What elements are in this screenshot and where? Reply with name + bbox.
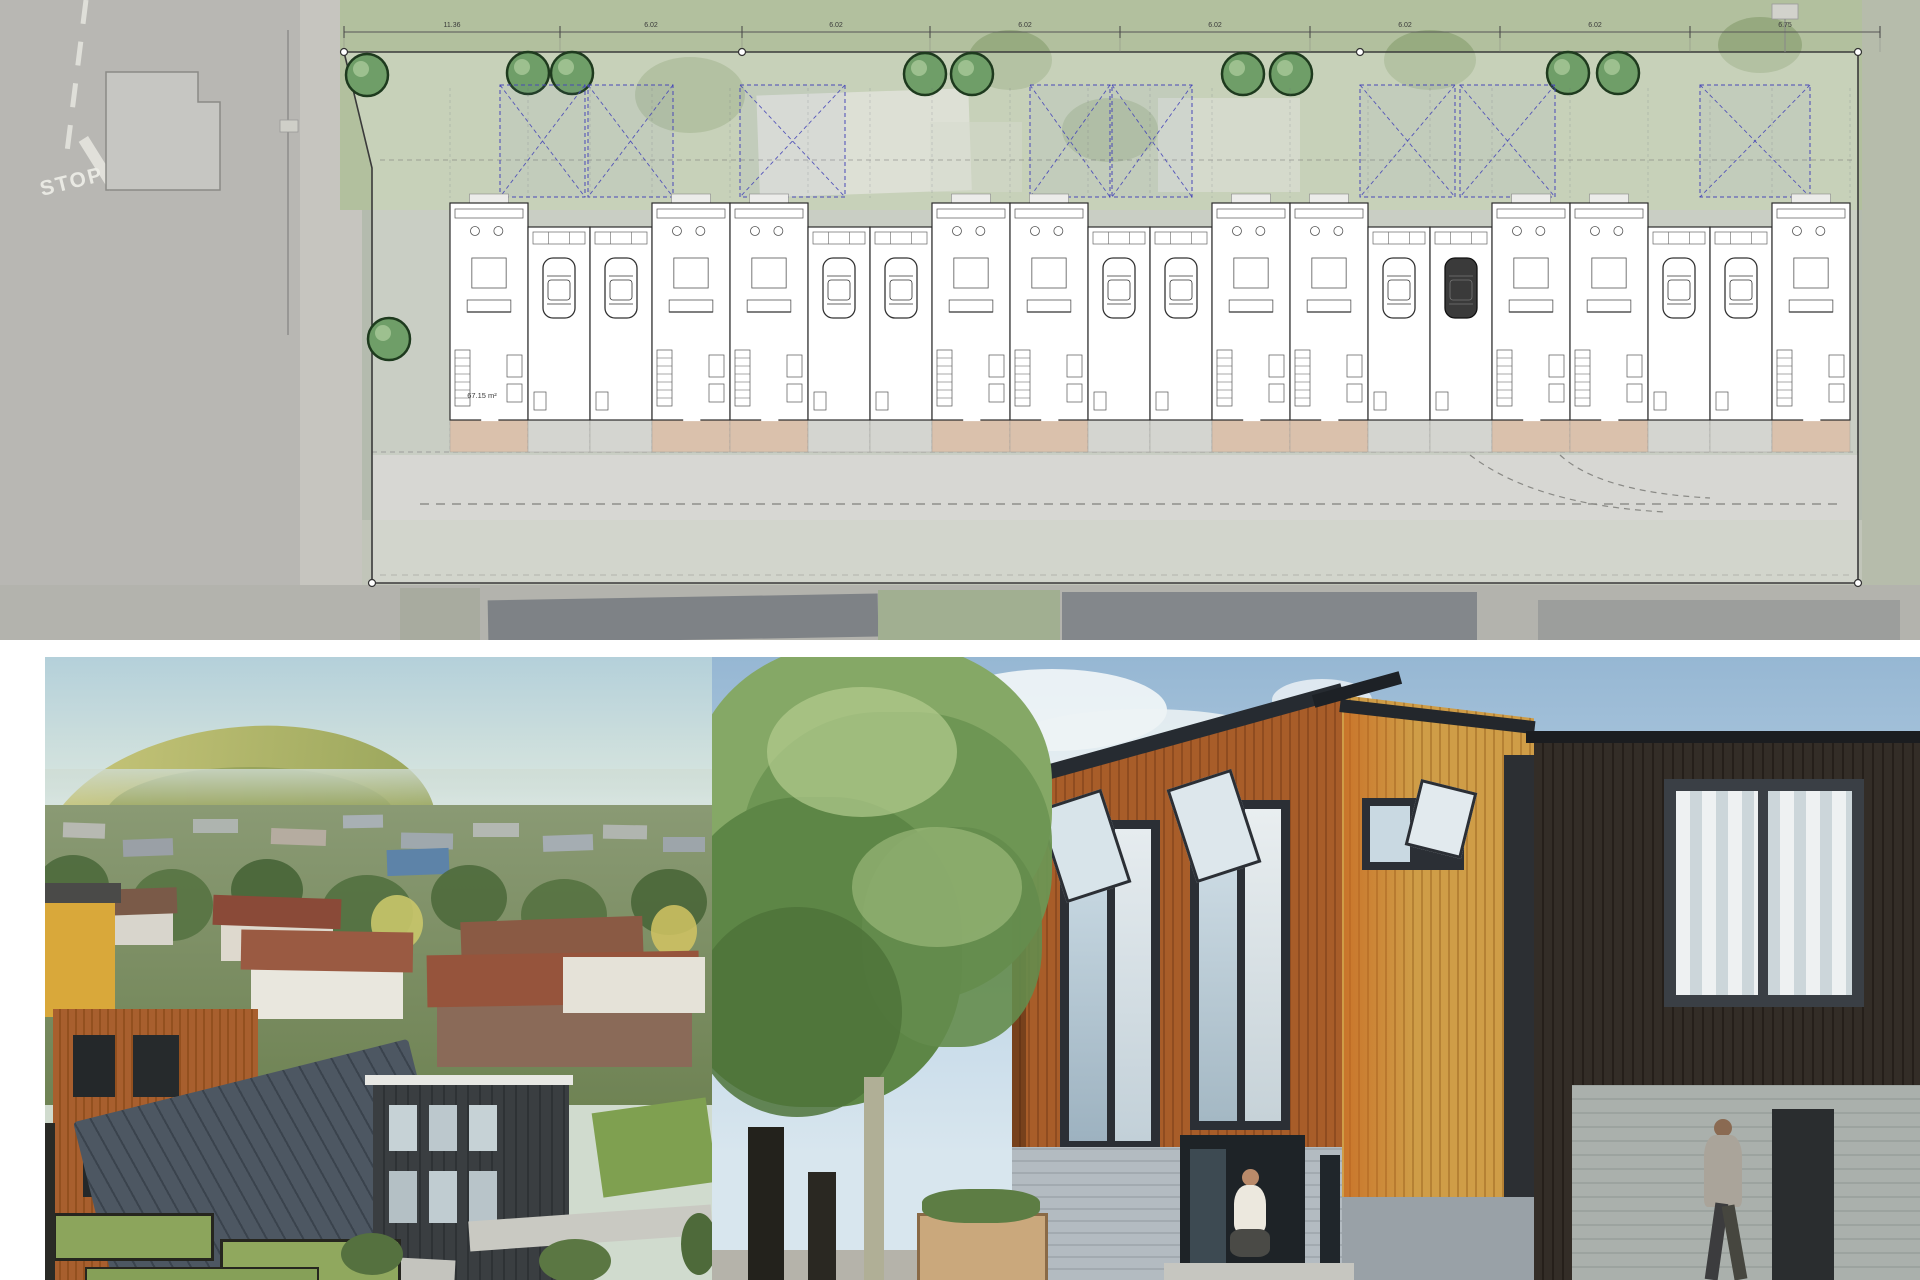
planter-greenery — [922, 1189, 1040, 1223]
dimension-label: 6.02 — [1588, 22, 1602, 29]
neighbor-roof — [488, 594, 879, 640]
fence — [45, 1123, 55, 1280]
rear-deck — [1792, 194, 1831, 203]
survey-marker — [280, 120, 298, 132]
aerial-right-margin — [1862, 0, 1920, 640]
tree-symbol-highlight — [1554, 59, 1570, 75]
person-sitting-legs — [1230, 1229, 1270, 1257]
corner-sun-glow — [1344, 712, 1414, 1272]
tree-highlight — [767, 687, 957, 817]
tree-symbol-highlight — [1229, 60, 1245, 76]
garage-unit — [808, 227, 870, 420]
person-sitting-body — [1234, 1185, 1266, 1233]
yellow-house — [45, 893, 115, 1017]
rear-patio — [528, 420, 590, 452]
rear-deck — [672, 194, 711, 203]
rear-patio — [1772, 420, 1850, 452]
plan-pin-tag — [1772, 4, 1798, 19]
person-sitting-head — [1242, 1169, 1259, 1186]
concrete-wall-side — [1342, 1197, 1534, 1280]
tree-symbol-highlight — [375, 325, 391, 341]
distant-roof — [473, 823, 519, 837]
garage-unit — [1368, 227, 1430, 420]
rear-patio — [652, 420, 730, 452]
window — [469, 1105, 497, 1151]
neighbor-garden — [878, 590, 1060, 640]
garage-unit — [1430, 227, 1492, 420]
tree-symbol — [951, 53, 993, 95]
tree-highlight — [852, 827, 1022, 947]
rear-patio — [870, 420, 932, 452]
garage-unit — [1710, 227, 1772, 420]
garage-unit — [590, 227, 652, 420]
white-house-roof — [241, 930, 414, 973]
tree-symbol — [1222, 53, 1264, 95]
tree-trunk-light — [864, 1077, 884, 1280]
boundary-node — [369, 580, 376, 587]
rear-patio — [1150, 420, 1212, 452]
rear-patio — [932, 420, 1010, 452]
rear-deck — [470, 194, 509, 203]
townhouse-render-photo — [712, 657, 1920, 1280]
dimension-label: 6.02 — [1208, 22, 1222, 29]
neighbor-roof — [1538, 600, 1900, 640]
boundary-node — [1855, 49, 1862, 56]
tree-symbol-highlight — [1277, 60, 1293, 76]
distant-roof — [271, 828, 327, 846]
rear-patio — [1290, 420, 1368, 452]
rear-patio — [1430, 420, 1492, 452]
window-glass — [1370, 806, 1410, 862]
rear-patio — [590, 420, 652, 452]
rear-deck — [1512, 194, 1551, 203]
blue-roof-house — [387, 848, 450, 876]
neighbor-roof — [1062, 592, 1477, 640]
tree-symbol-highlight — [911, 60, 927, 76]
window — [389, 1105, 417, 1151]
rear-deck — [1310, 194, 1349, 203]
window — [429, 1105, 457, 1151]
entry-door-glass — [1190, 1149, 1226, 1280]
accent-stripe — [1504, 755, 1534, 1205]
dark-building-fascia — [1526, 731, 1920, 743]
narrow-window — [1320, 1155, 1340, 1280]
garage-unit — [1648, 227, 1710, 420]
garage-unit — [870, 227, 932, 420]
rear-patio — [1710, 420, 1772, 452]
rear-deck — [750, 194, 789, 203]
shrub — [681, 1213, 712, 1275]
shrub — [341, 1233, 403, 1275]
window — [469, 1171, 497, 1223]
planter-box — [917, 1213, 1048, 1280]
window — [133, 1035, 179, 1097]
tree-trunk — [748, 1127, 784, 1280]
distant-roof — [401, 833, 453, 850]
tree-symbol-highlight — [514, 59, 530, 75]
rear-patio — [1212, 420, 1290, 452]
dimension-label: 11.36 — [444, 22, 461, 29]
rear-patio — [1010, 420, 1088, 452]
boundary-node — [739, 49, 746, 56]
neighbor-driveway — [400, 588, 480, 640]
site-plan: STOP 1 — [0, 0, 1920, 640]
rear-deck — [1030, 194, 1069, 203]
concrete-wall-right — [1572, 1085, 1920, 1280]
rear-patio — [808, 420, 870, 452]
distant-roof — [63, 822, 105, 838]
rear-patio — [1088, 420, 1150, 452]
rear-patio — [450, 420, 528, 452]
tree-symbol — [368, 318, 410, 360]
yellow-house-roof — [45, 883, 121, 903]
rear-patio — [1492, 420, 1570, 452]
existing-roof-washed — [930, 122, 1022, 192]
rear-deck — [1590, 194, 1629, 203]
big-window-mullion — [1758, 791, 1768, 995]
distant-roof — [343, 815, 383, 829]
boundary-node — [341, 49, 348, 56]
distant-roof — [123, 838, 174, 857]
dimension-label: 6.02 — [1398, 22, 1412, 29]
porch-step — [1164, 1263, 1354, 1280]
distant-roof — [663, 837, 705, 852]
shrub — [539, 1239, 611, 1280]
garage-unit — [1150, 227, 1212, 420]
dimension-label: 6.75 — [1778, 22, 1792, 29]
planter — [53, 1213, 214, 1261]
window — [389, 1171, 417, 1223]
planter — [85, 1267, 319, 1280]
tree-symbol-highlight — [1604, 59, 1620, 75]
garage-unit — [1088, 227, 1150, 420]
unit-area-label: 67.15 m² — [467, 391, 497, 400]
dark-door — [1772, 1109, 1834, 1280]
rear-patio — [1648, 420, 1710, 452]
distant-roof — [193, 819, 238, 833]
lawn-strip — [592, 1097, 712, 1197]
dimension-label: 6.02 — [644, 22, 658, 29]
tree-symbol — [904, 53, 946, 95]
dimension-label: 6.02 — [829, 22, 843, 29]
tree-symbol-highlight — [558, 59, 574, 75]
tree-symbol-highlight — [958, 60, 974, 76]
rear-patio — [1570, 420, 1648, 452]
person-walking-coat — [1704, 1135, 1742, 1207]
distant-roof — [603, 825, 647, 840]
tree-trunk — [808, 1172, 836, 1280]
rear-deck — [952, 194, 991, 203]
rear-patio — [730, 420, 808, 452]
boundary-node — [1357, 49, 1364, 56]
house-roof — [213, 895, 342, 929]
dark-house-fascia — [365, 1075, 573, 1085]
aerial-neighborhood-photo — [45, 657, 712, 1280]
tree-symbol — [346, 54, 388, 96]
dimension-label: 6.02 — [1018, 22, 1032, 29]
garage-unit — [528, 227, 590, 420]
distant-roof — [543, 834, 594, 852]
white-house — [563, 957, 705, 1013]
rear-deck — [1232, 194, 1271, 203]
tree-symbol-highlight — [353, 61, 369, 77]
tree-symbol — [1270, 53, 1312, 95]
window — [73, 1035, 115, 1097]
rear-patio — [1368, 420, 1430, 452]
tree-symbol — [1597, 52, 1639, 94]
window — [429, 1171, 457, 1223]
autumn-tree — [651, 905, 697, 957]
composite-image: STOP 1 — [0, 0, 1920, 1280]
boundary-node — [1855, 580, 1862, 587]
